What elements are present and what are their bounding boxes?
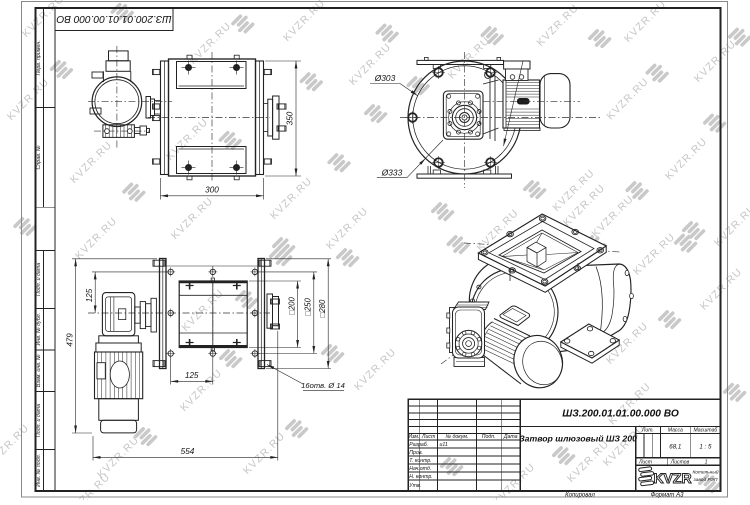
svg-text:350: 350 [286, 111, 295, 125]
svg-text:Нач.отд.: Нач.отд. [409, 466, 431, 472]
svg-text:125: 125 [85, 288, 94, 302]
svg-text:Подп.: Подп. [482, 434, 496, 440]
svg-text:□250: □250 [304, 297, 313, 315]
svg-text:Разраб.: Разраб. [409, 442, 428, 448]
svg-text:Лист: Лист [638, 460, 652, 466]
svg-text:Формат А3: Формат А3 [651, 493, 684, 499]
svg-text:ШЗ.200.01.01.00.000 ВО: ШЗ.200.01.01.00.000 ВО [562, 409, 679, 420]
svg-text:125: 125 [185, 371, 199, 380]
svg-text:Подп. и дата: Подп. и дата [36, 263, 42, 296]
svg-text:□280: □280 [318, 299, 327, 317]
svg-text:Пров.: Пров. [409, 450, 423, 456]
svg-text:Масса: Масса [668, 428, 683, 434]
svg-text:Копировал: Копировал [565, 493, 595, 499]
svg-text:68,1: 68,1 [669, 444, 681, 451]
svg-text:№ докум.: № докум. [445, 434, 468, 440]
svg-text:Изм.: Изм. [408, 434, 419, 440]
svg-text:Подп. и дата: Подп. и дата [36, 404, 42, 437]
svg-text:Листов: Листов [670, 460, 690, 466]
svg-text:Взам. инв. №: Взам. инв. № [36, 354, 42, 387]
svg-text:Н. контр.: Н. контр. [409, 474, 432, 480]
svg-text:Дата: Дата [503, 434, 518, 440]
svg-text:Перв. примен.: Перв. примен. [36, 40, 42, 75]
svg-text:1 : 5: 1 : 5 [699, 444, 712, 451]
svg-text:ШЗ.200.01.01.00.000 ВО: ШЗ.200.01.01.00.000 ВО [56, 13, 171, 24]
svg-text:□200: □200 [287, 296, 296, 314]
svg-text:Ø333: Ø333 [381, 167, 403, 177]
svg-text:1: 1 [705, 460, 708, 466]
svg-text:Масштаб: Масштаб [694, 428, 719, 434]
svg-text:Ø303: Ø303 [374, 73, 396, 83]
svg-text:Затвор шлюзовый ШЗ 200: Затвор шлюзовый ШЗ 200 [519, 434, 637, 444]
svg-text:и11: и11 [440, 442, 448, 448]
svg-text:479: 479 [65, 333, 74, 347]
svg-text:16отв. Ø 14: 16отв. Ø 14 [301, 381, 345, 390]
svg-text:Утв.: Утв. [409, 483, 421, 489]
svg-text:Лит.: Лит. [641, 428, 654, 434]
svg-text:Т. контр.: Т. контр. [409, 458, 431, 464]
svg-text:Инв. № подл.: Инв. № подл. [36, 454, 42, 487]
svg-text:Котельный: Котельный [692, 469, 718, 476]
svg-text:Лист: Лист [421, 434, 436, 440]
svg-text:KVZR: KVZR [653, 470, 691, 486]
svg-text:300: 300 [205, 186, 219, 195]
svg-text:Справ. №: Справ. № [36, 145, 42, 169]
svg-text:554: 554 [181, 447, 195, 456]
svg-text:завод РЭП: завод РЭП [693, 477, 718, 483]
svg-text:Инв. № дубл.: Инв. № дубл. [36, 313, 42, 346]
